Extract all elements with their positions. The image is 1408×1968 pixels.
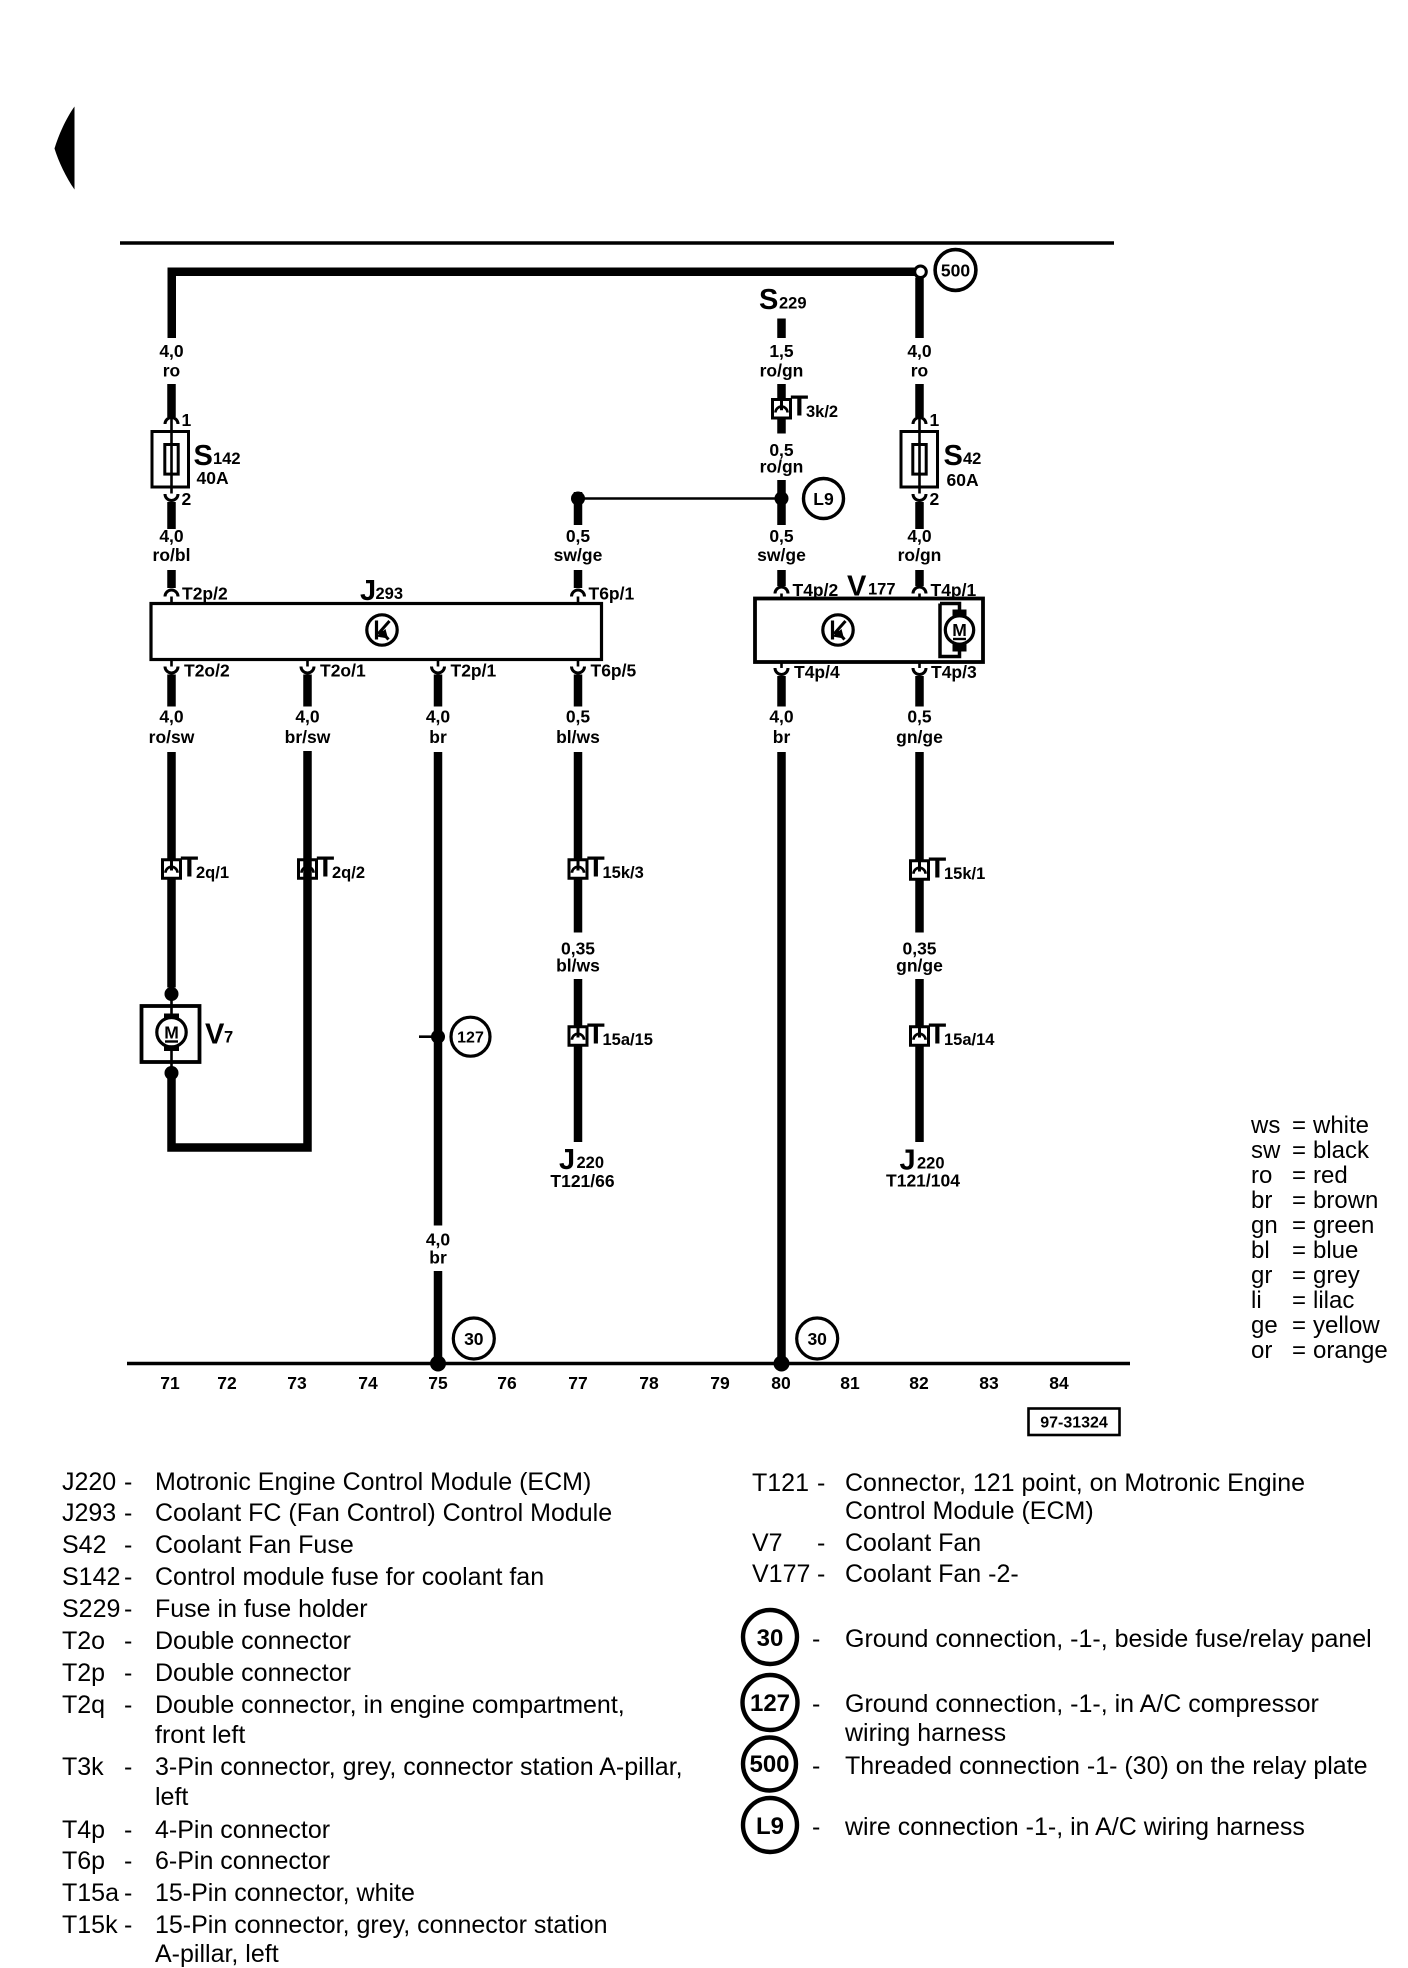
svg-text:3-Pin connector, grey, connect: 3-Pin connector, grey, connector station…	[155, 1753, 683, 1781]
svg-text:Coolant FC (Fan Control) Contr: Coolant FC (Fan Control) Control Module	[155, 1499, 612, 1527]
svg-text:Double connector: Double connector	[155, 1659, 351, 1687]
svg-text:S142: S142	[62, 1563, 120, 1591]
svg-text:T6p: T6p	[62, 1847, 105, 1875]
svg-text:78: 78	[639, 1373, 659, 1393]
svg-text:brown: brown	[1313, 1187, 1378, 1214]
svg-text:S: S	[759, 284, 778, 316]
svg-text:81: 81	[840, 1373, 860, 1393]
svg-text:500: 500	[749, 1751, 789, 1778]
svg-text:-: -	[817, 1469, 825, 1497]
svg-text:T4p/3: T4p/3	[931, 662, 977, 682]
svg-text:S42: S42	[62, 1531, 106, 1559]
svg-text:7: 7	[224, 1029, 233, 1047]
svg-text:42: 42	[963, 450, 981, 468]
svg-text:2q/2: 2q/2	[332, 864, 365, 882]
svg-text:2: 2	[182, 489, 192, 509]
svg-text:left: left	[155, 1783, 188, 1811]
svg-text:4,0: 4,0	[426, 1230, 451, 1250]
svg-text:1: 1	[930, 410, 940, 430]
svg-text:ge: ge	[1251, 1312, 1278, 1339]
svg-text:-: -	[124, 1911, 132, 1939]
svg-text:4-Pin connector: 4-Pin connector	[155, 1816, 330, 1844]
svg-text:ro: ro	[911, 361, 929, 381]
svg-text:72: 72	[217, 1373, 237, 1393]
svg-text:S229: S229	[62, 1595, 120, 1623]
svg-text:T121: T121	[752, 1469, 809, 1497]
svg-text:gr: gr	[1251, 1262, 1272, 1289]
svg-text:=: =	[1292, 1162, 1306, 1189]
svg-text:Fuse in fuse holder: Fuse in fuse holder	[155, 1595, 368, 1623]
svg-text:Ground connection, -1-, in A/C: Ground connection, -1-, in A/C compresso…	[845, 1690, 1319, 1718]
svg-text:T2p: T2p	[62, 1659, 105, 1687]
svg-text:-: -	[124, 1847, 132, 1875]
svg-text:75: 75	[428, 1373, 448, 1393]
svg-text:T2o/2: T2o/2	[184, 661, 230, 681]
svg-text:ro/gn: ro/gn	[898, 545, 942, 565]
svg-text:83: 83	[979, 1373, 999, 1393]
svg-text:T121/66: T121/66	[550, 1171, 614, 1191]
svg-text:ro/bl: ro/bl	[153, 545, 191, 565]
svg-text:J220: J220	[62, 1468, 116, 1496]
svg-text:77: 77	[568, 1373, 587, 1393]
svg-text:6-Pin connector: 6-Pin connector	[155, 1847, 330, 1875]
svg-text:T6p/5: T6p/5	[591, 661, 637, 681]
svg-text:T121/104: T121/104	[886, 1171, 960, 1191]
svg-text:front left: front left	[155, 1721, 245, 1749]
svg-text:0,5: 0,5	[566, 526, 591, 546]
svg-text:gn/ge: gn/ge	[896, 727, 943, 747]
svg-text:Coolant Fan: Coolant Fan	[845, 1529, 981, 1557]
svg-text:grey: grey	[1313, 1262, 1360, 1289]
svg-text:black: black	[1313, 1137, 1370, 1164]
svg-text:T4p: T4p	[62, 1816, 105, 1844]
svg-text:4,0: 4,0	[159, 526, 184, 546]
svg-text:30: 30	[757, 1625, 784, 1652]
svg-text:15a/14: 15a/14	[944, 1031, 995, 1049]
svg-text:82: 82	[909, 1373, 929, 1393]
svg-text:Double connector: Double connector	[155, 1627, 351, 1655]
svg-text:2: 2	[930, 489, 940, 509]
svg-text:-: -	[124, 1753, 132, 1781]
svg-text:15k/3: 15k/3	[603, 864, 644, 882]
svg-text:73: 73	[287, 1373, 307, 1393]
svg-text:-: -	[124, 1531, 132, 1559]
svg-text:T3k: T3k	[62, 1753, 104, 1781]
svg-text:Coolant Fan -2-: Coolant Fan -2-	[845, 1560, 1019, 1588]
svg-text:sw/ge: sw/ge	[554, 545, 603, 565]
svg-text:V: V	[205, 1019, 225, 1051]
svg-text:S: S	[944, 440, 963, 472]
svg-text:T6p/1: T6p/1	[589, 584, 635, 604]
svg-text:15a/15: 15a/15	[603, 1031, 653, 1049]
svg-text:red: red	[1313, 1162, 1348, 1189]
svg-text:sw: sw	[1251, 1137, 1281, 1164]
svg-text:T2o: T2o	[62, 1627, 105, 1655]
svg-text:T2o/1: T2o/1	[320, 661, 366, 681]
svg-text:lilac: lilac	[1313, 1287, 1354, 1314]
svg-text:30: 30	[807, 1329, 827, 1349]
svg-text:-: -	[812, 1625, 820, 1653]
svg-text:142: 142	[213, 450, 241, 468]
svg-text:40A: 40A	[197, 468, 229, 488]
svg-text:220: 220	[577, 1154, 605, 1172]
svg-text:wire connection -1-, in A/C wi: wire connection -1-, in A/C wiring harne…	[844, 1813, 1305, 1841]
svg-text:-: -	[124, 1595, 132, 1623]
svg-text:li: li	[1251, 1287, 1262, 1314]
svg-text:Threaded connection -1- (30) o: Threaded connection -1- (30) on the rela…	[845, 1752, 1368, 1780]
svg-text:A-pillar, left: A-pillar, left	[155, 1940, 279, 1968]
svg-text:Ground connection, -1-, beside: Ground connection, -1-, beside fuse/rela…	[845, 1625, 1372, 1653]
svg-text:br: br	[429, 1248, 447, 1268]
svg-text:bl: bl	[1251, 1237, 1270, 1264]
svg-text:=: =	[1292, 1237, 1306, 1264]
svg-text:1,5: 1,5	[769, 341, 794, 361]
svg-text:M: M	[164, 1023, 179, 1043]
svg-text:=: =	[1292, 1287, 1306, 1314]
svg-text:127: 127	[457, 1030, 484, 1047]
svg-text:4,0: 4,0	[907, 341, 932, 361]
svg-text:-: -	[124, 1816, 132, 1844]
svg-text:=: =	[1292, 1337, 1306, 1364]
svg-text:-: -	[124, 1879, 132, 1907]
svg-text:L9: L9	[756, 1813, 784, 1840]
svg-text:=: =	[1292, 1212, 1306, 1239]
svg-text:177: 177	[868, 581, 896, 599]
svg-text:15-Pin connector, white: 15-Pin connector, white	[155, 1879, 415, 1907]
svg-text:-: -	[124, 1627, 132, 1655]
svg-text:T2p/1: T2p/1	[451, 661, 497, 681]
svg-text:4,0: 4,0	[426, 707, 451, 727]
svg-text:Double connector, in engine co: Double connector, in engine compartment,	[155, 1691, 625, 1719]
svg-text:=: =	[1292, 1112, 1306, 1139]
svg-text:blue: blue	[1313, 1237, 1358, 1264]
svg-text:ro/sw: ro/sw	[149, 727, 195, 747]
svg-text:bl/ws: bl/ws	[556, 727, 600, 747]
svg-text:V: V	[847, 571, 867, 603]
svg-text:bl/ws: bl/ws	[556, 956, 600, 976]
svg-text:0,5: 0,5	[566, 707, 591, 727]
svg-text:=: =	[1292, 1187, 1306, 1214]
svg-text:0,5: 0,5	[907, 707, 932, 727]
svg-text:M: M	[952, 620, 967, 640]
svg-text:V177: V177	[752, 1560, 810, 1588]
svg-text:97-31324: 97-31324	[1040, 1415, 1108, 1432]
svg-text:=: =	[1292, 1262, 1306, 1289]
svg-text:-: -	[817, 1529, 825, 1557]
svg-text:Connector, 121 point, on Motro: Connector, 121 point, on Motronic Engine	[845, 1469, 1305, 1497]
svg-text:-: -	[812, 1690, 820, 1718]
svg-text:-: -	[124, 1499, 132, 1527]
svg-text:500: 500	[941, 261, 970, 281]
svg-text:30: 30	[464, 1329, 484, 1349]
svg-text:gn/ge: gn/ge	[896, 956, 943, 976]
svg-text:br: br	[429, 727, 447, 747]
svg-text:=: =	[1292, 1137, 1306, 1164]
svg-text:=: =	[1292, 1312, 1306, 1339]
svg-text:4,0: 4,0	[159, 341, 184, 361]
svg-text:ro/gn: ro/gn	[760, 361, 804, 381]
svg-text:ws: ws	[1250, 1112, 1280, 1139]
svg-text:T2q: T2q	[62, 1691, 105, 1719]
svg-text:127: 127	[750, 1690, 790, 1717]
svg-text:-: -	[812, 1813, 820, 1841]
svg-text:green: green	[1313, 1212, 1374, 1239]
svg-text:T15a: T15a	[62, 1879, 119, 1907]
svg-text:sw/ge: sw/ge	[757, 545, 806, 565]
svg-text:84: 84	[1049, 1373, 1069, 1393]
svg-text:ro/gn: ro/gn	[760, 457, 804, 477]
svg-text:wiring harness: wiring harness	[844, 1719, 1006, 1747]
svg-text:L9: L9	[813, 489, 834, 509]
svg-text:1: 1	[182, 410, 192, 430]
svg-text:ro: ro	[163, 361, 181, 381]
svg-text:T2p/2: T2p/2	[182, 584, 228, 604]
svg-text:white: white	[1312, 1112, 1369, 1139]
svg-text:J: J	[360, 575, 376, 607]
svg-text:80: 80	[771, 1373, 791, 1393]
svg-text:yellow: yellow	[1313, 1312, 1380, 1339]
svg-text:293: 293	[376, 585, 404, 603]
svg-text:T15k: T15k	[62, 1911, 118, 1939]
svg-text:229: 229	[779, 295, 807, 313]
svg-text:ro: ro	[1251, 1162, 1272, 1189]
svg-text:Control Module (ECM): Control Module (ECM)	[845, 1497, 1094, 1525]
svg-text:-: -	[812, 1752, 820, 1780]
svg-text:orange: orange	[1313, 1337, 1388, 1364]
svg-text:gn: gn	[1251, 1212, 1278, 1239]
svg-text:-: -	[817, 1560, 825, 1588]
svg-text:76: 76	[497, 1373, 517, 1393]
svg-text:-: -	[124, 1468, 132, 1496]
svg-text:or: or	[1251, 1337, 1272, 1364]
svg-text:15k/1: 15k/1	[944, 865, 985, 883]
svg-text:3k/2: 3k/2	[806, 403, 838, 421]
svg-text:Motronic Engine Control Module: Motronic Engine Control Module (ECM)	[155, 1468, 591, 1496]
svg-text:60A: 60A	[947, 470, 979, 490]
svg-text:-: -	[124, 1691, 132, 1719]
svg-text:2q/1: 2q/1	[196, 864, 229, 882]
svg-text:br: br	[773, 727, 791, 747]
svg-text:-: -	[124, 1563, 132, 1591]
svg-text:79: 79	[710, 1373, 730, 1393]
svg-text:br/sw: br/sw	[285, 727, 331, 747]
svg-text:br: br	[1251, 1187, 1272, 1214]
svg-text:J293: J293	[62, 1499, 116, 1527]
svg-text:74: 74	[358, 1373, 378, 1393]
svg-text:T4p/4: T4p/4	[794, 662, 840, 682]
svg-text:15-Pin connector, grey, connec: 15-Pin connector, grey, connector statio…	[155, 1911, 608, 1939]
svg-text:71: 71	[160, 1373, 180, 1393]
svg-text:Coolant Fan Fuse: Coolant Fan Fuse	[155, 1531, 354, 1559]
svg-text:V7: V7	[752, 1529, 783, 1557]
svg-text:0,5: 0,5	[769, 526, 794, 546]
svg-text:4,0: 4,0	[159, 707, 184, 727]
svg-text:4,0: 4,0	[769, 707, 794, 727]
svg-text:Control module fuse for coolan: Control module fuse for coolant fan	[155, 1563, 544, 1591]
svg-text:-: -	[124, 1659, 132, 1687]
svg-text:4,0: 4,0	[295, 707, 320, 727]
svg-text:4,0: 4,0	[907, 526, 932, 546]
